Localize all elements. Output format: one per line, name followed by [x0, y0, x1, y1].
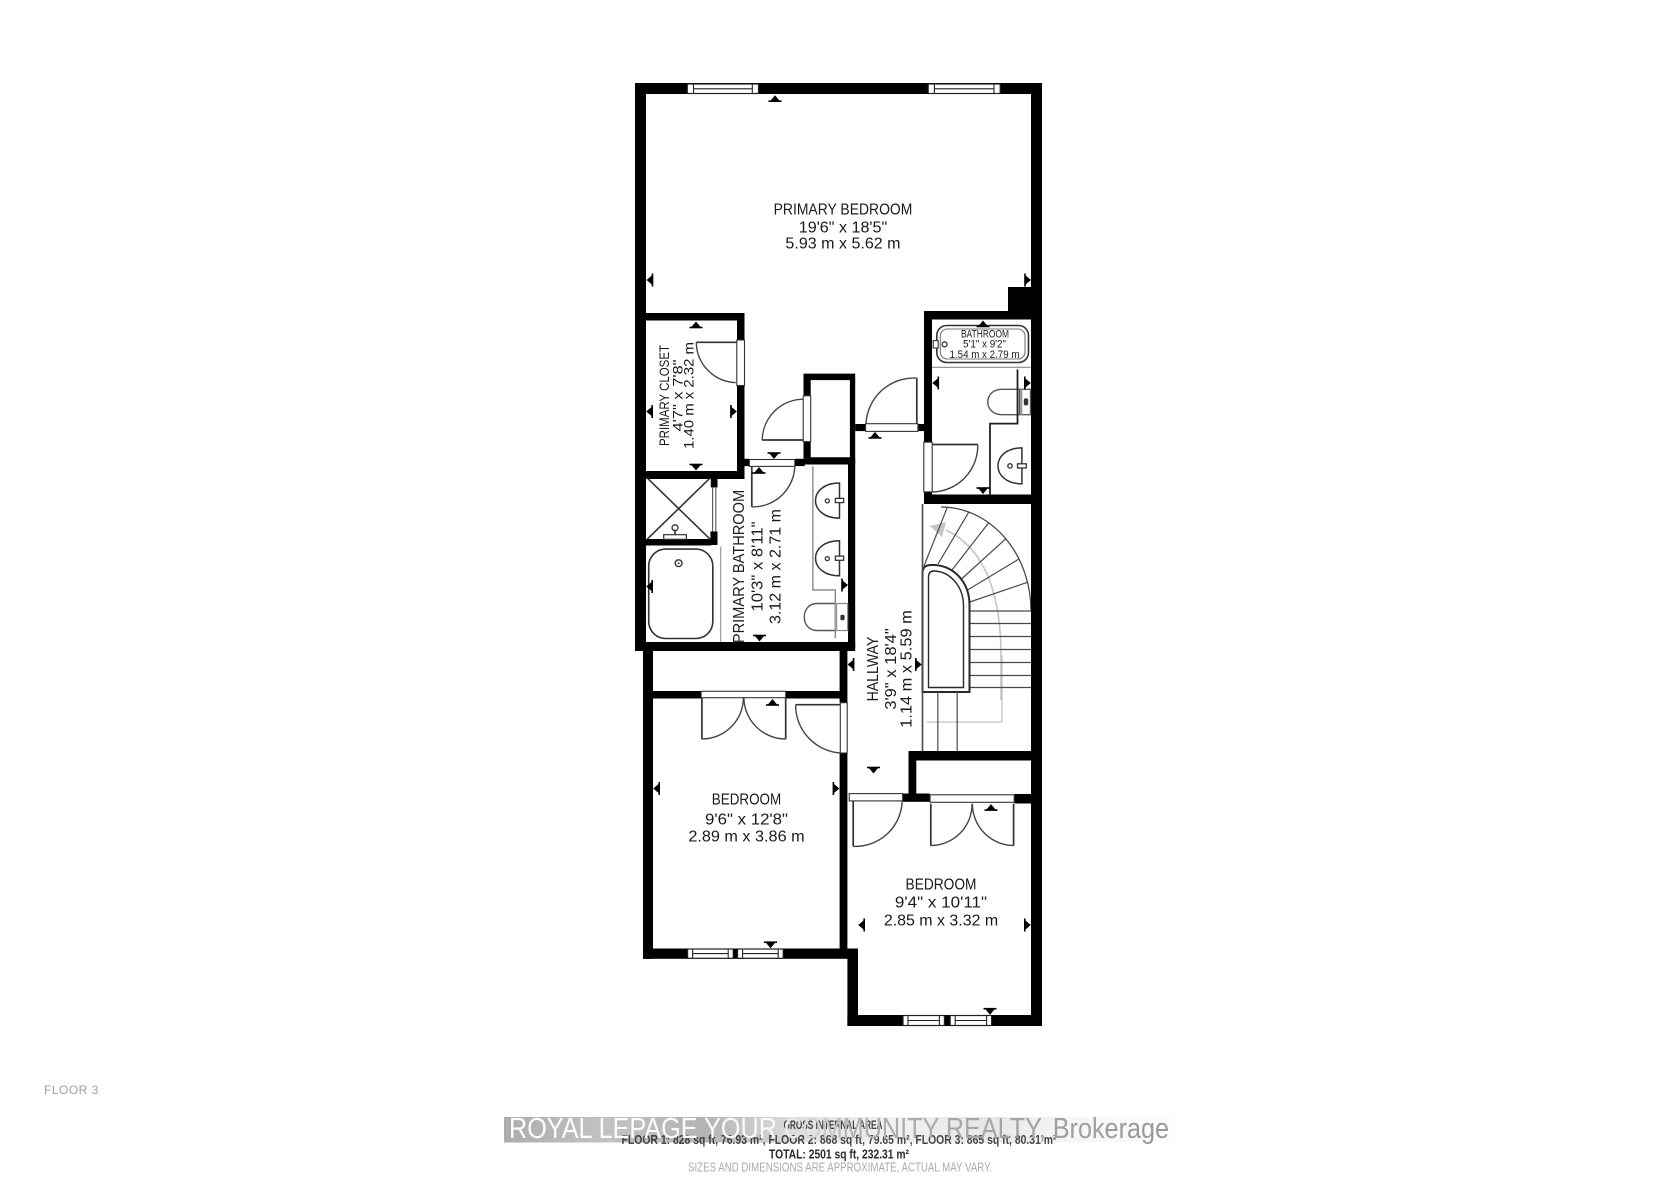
svg-text:5.93 m x 5.62 m: 5.93 m x 5.62 m [785, 236, 900, 253]
svg-text:PRIMARY BATHROOM: PRIMARY BATHROOM [731, 490, 748, 643]
svg-text:1.54 m x 2.79 m: 1.54 m x 2.79 m [950, 349, 1020, 361]
svg-text:HALLWAY: HALLWAY [865, 636, 882, 701]
svg-text:BEDROOM: BEDROOM [906, 877, 977, 894]
svg-text:1.40 m x 2.32 m: 1.40 m x 2.32 m [682, 342, 698, 449]
svg-text:1.14 m x 5.59 m: 1.14 m x 5.59 m [899, 610, 916, 728]
svg-text:BEDROOM: BEDROOM [712, 792, 781, 809]
svg-text:10'3" x 8'11": 10'3" x 8'11" [750, 522, 767, 612]
svg-text:3.12 m x 2.71 m: 3.12 m x 2.71 m [768, 509, 785, 624]
svg-text:PRIMARY BEDROOM: PRIMARY BEDROOM [774, 202, 913, 219]
svg-text:3'9" x 18'4": 3'9" x 18'4" [883, 628, 900, 710]
svg-text:SIZES AND DIMENSIONS ARE APPRO: SIZES AND DIMENSIONS ARE APPROXIMATE, AC… [688, 1161, 992, 1175]
svg-text:9'4" x 10'11": 9'4" x 10'11" [895, 895, 987, 912]
svg-text:2.89 m x 3.86 m: 2.89 m x 3.86 m [688, 829, 804, 846]
svg-text:FLOOR 3: FLOOR 3 [44, 1083, 99, 1097]
svg-text:ROYAL LEPAGE YOUR COMMUNITY RE: ROYAL LEPAGE YOUR COMMUNITY REALTY, Brok… [509, 1113, 1169, 1145]
svg-text:19'6" x 18'5": 19'6" x 18'5" [799, 220, 887, 237]
svg-text:2.85 m x 3.32 m: 2.85 m x 3.32 m [884, 913, 998, 930]
svg-text:9'6" x 12'8": 9'6" x 12'8" [705, 812, 788, 829]
svg-text:TOTAL: 2501 sq ft, 232.31 m²: TOTAL: 2501 sq ft, 232.31 m² [769, 1147, 910, 1162]
